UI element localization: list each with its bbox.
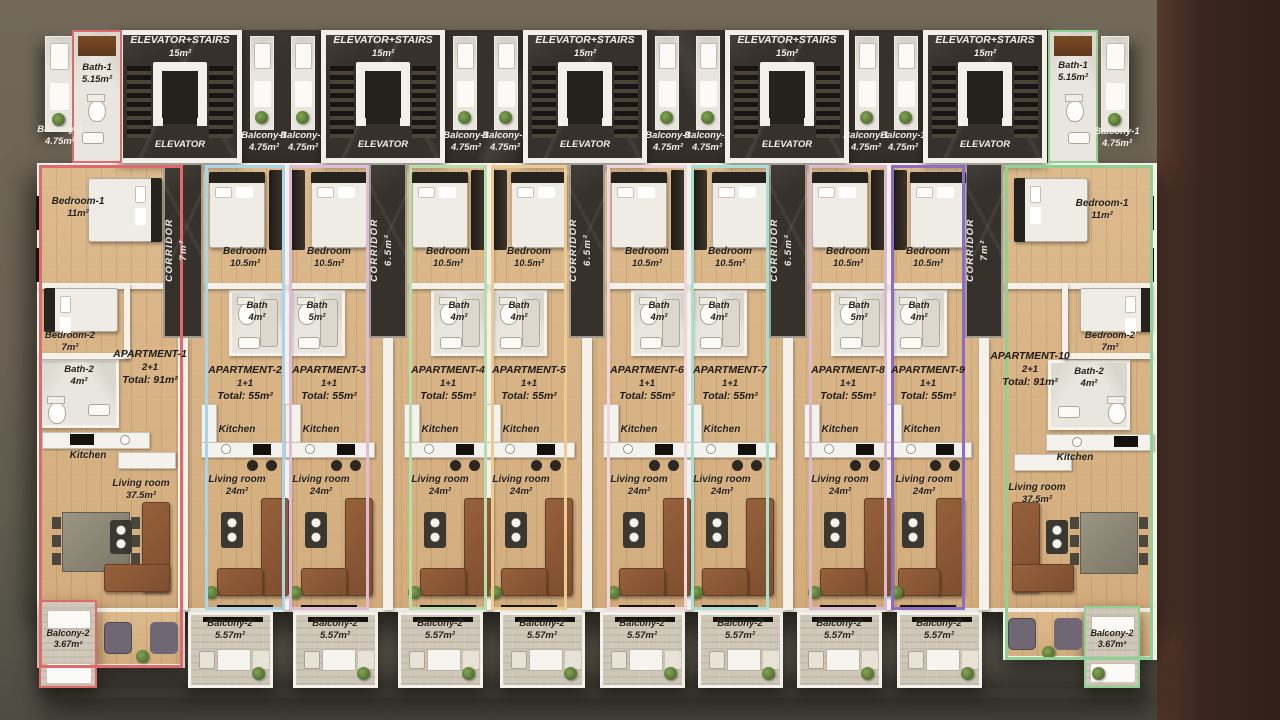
- bedroom-label: Bedroom10.5m²: [810, 246, 886, 270]
- sofa: [464, 498, 492, 596]
- kitchen-counter: [686, 442, 776, 458]
- elevator-label: ELEVATOR: [535, 139, 635, 151]
- stove-icon: [738, 444, 756, 455]
- stove-icon: [70, 434, 94, 445]
- kitchen-counter: [42, 432, 150, 449]
- stool-icon: [930, 460, 941, 471]
- balcony1-label: Balcony-14.75m²: [272, 130, 334, 155]
- stool-icon: [247, 460, 258, 471]
- wall: [491, 283, 567, 289]
- living-label: Living room24m²: [281, 474, 361, 498]
- stove-icon: [856, 444, 874, 455]
- bath1-label: Bath-15.15m²: [1048, 60, 1098, 83]
- bath-label: Bath4m²: [489, 300, 549, 323]
- dining-table: [1080, 512, 1138, 574]
- elevator-label: ELEVATOR: [935, 139, 1035, 151]
- sink-icon: [700, 337, 722, 349]
- balcony2-label: Balcony-23.67m²: [1084, 628, 1140, 650]
- core-label: ELEVATOR+STAIRS15m²: [731, 34, 843, 60]
- kitchen-counter: [886, 442, 972, 458]
- coffee-table: [824, 512, 846, 548]
- stove-icon: [655, 444, 673, 455]
- elevator-shaft-icon: [356, 62, 410, 124]
- balcony1-label: Balcony-14.75m²: [676, 130, 738, 155]
- balcony1-label: Balcony-14.75m²: [25, 124, 95, 149]
- stairs-icon: [1014, 66, 1038, 138]
- bedroom-label: Bedroom10.5m²: [491, 246, 567, 270]
- toilet-icon: [1066, 100, 1084, 122]
- stove-icon: [253, 444, 271, 455]
- living-label: Living room37.5m²: [992, 482, 1082, 506]
- corridor-label: CORRIDOR6.5m²: [368, 190, 408, 310]
- balcony-door: [702, 605, 758, 610]
- elevator-label: ELEVATOR: [333, 139, 433, 151]
- bed: [611, 172, 667, 248]
- wall: [383, 338, 393, 610]
- balcony1-label: Balcony-14.75m²: [1082, 126, 1152, 151]
- plant-icon: [489, 586, 502, 599]
- side-panel: [1157, 0, 1280, 720]
- sofa: [619, 568, 665, 596]
- plant-icon: [408, 586, 421, 599]
- plant-icon: [890, 586, 903, 599]
- plant-icon: [808, 586, 821, 599]
- sink-icon: [906, 444, 916, 454]
- stairs-icon: [932, 66, 956, 138]
- wall: [124, 283, 130, 358]
- closet: [871, 170, 885, 250]
- closet: [291, 170, 305, 250]
- sofa: [746, 498, 774, 596]
- sink-icon: [298, 337, 320, 349]
- sofa: [420, 568, 466, 596]
- kitchen-label: Kitchen: [202, 424, 272, 436]
- bed: [812, 172, 868, 248]
- living-label: Living room24m²: [800, 474, 880, 498]
- sink-icon: [824, 444, 834, 454]
- sofa: [663, 498, 691, 596]
- wall: [409, 283, 487, 289]
- bed: [44, 288, 118, 332]
- sofa: [501, 568, 547, 596]
- sofa: [217, 568, 263, 596]
- sink-icon: [424, 444, 434, 454]
- balcony1-label: Balcony-14.75m²: [872, 130, 934, 155]
- armchair: [1008, 618, 1036, 650]
- balcony2-label: Balcony-25.57m²: [504, 618, 580, 641]
- kitchen-label: Kitchen: [486, 424, 556, 436]
- kitchen-label: Kitchen: [887, 424, 957, 436]
- sofa: [864, 498, 892, 596]
- coffee-table: [706, 512, 728, 548]
- sofa: [898, 568, 940, 596]
- stove-icon: [1114, 436, 1138, 447]
- bath1-label: Bath-15.15m²: [72, 62, 122, 85]
- wall: [607, 283, 687, 289]
- closet: [671, 170, 685, 250]
- kitchen-counter: [201, 442, 291, 458]
- wall: [1062, 283, 1068, 358]
- bath-label: Bath4m²: [429, 300, 489, 323]
- core-label: ELEVATOR+STAIRS15m²: [529, 34, 641, 60]
- window: [1150, 248, 1154, 282]
- bedroom-label: Bedroom10.5m²: [291, 246, 367, 270]
- kitchen-label: Kitchen: [687, 424, 757, 436]
- balcony1-strip: [250, 36, 274, 130]
- stairs-icon: [127, 66, 151, 138]
- coffee-table: [505, 512, 527, 548]
- closet: [493, 170, 507, 250]
- sofa: [820, 568, 866, 596]
- bedroom-label: Bedroom10.5m²: [207, 246, 283, 270]
- balcony1-strip: [1101, 36, 1129, 132]
- bath-label: Bath4m²: [227, 300, 287, 323]
- sofa: [936, 498, 964, 596]
- stove-icon: [456, 444, 474, 455]
- stool-icon: [649, 460, 660, 471]
- balcony2-label: Balcony-23.67m²: [40, 628, 96, 650]
- wall: [289, 283, 369, 289]
- stairs-icon: [209, 66, 233, 138]
- bath-label: Bath4m²: [689, 300, 749, 323]
- core-label: ELEVATOR+STAIRS15m²: [327, 34, 439, 60]
- building-shadow: [60, 688, 1140, 698]
- apartment-10-label: APARTMENT-102+1Total: 91m²: [978, 350, 1082, 390]
- plant-icon: [690, 586, 703, 599]
- wall: [691, 283, 769, 289]
- wall: [783, 338, 793, 610]
- kitchen-label: Kitchen: [805, 424, 875, 436]
- sink-icon: [440, 337, 462, 349]
- sink-icon: [88, 404, 110, 416]
- balcony-door: [900, 605, 956, 610]
- apartment-9-label: APARTMENT-91+1Total: 55m²: [876, 364, 980, 404]
- kitchen-label: Kitchen: [53, 450, 123, 462]
- elevator-label: ELEVATOR: [737, 139, 837, 151]
- closet: [693, 170, 707, 250]
- coffee-table: [902, 512, 924, 548]
- sofa: [301, 568, 347, 596]
- window: [1150, 196, 1154, 230]
- kitchen-label: Kitchen: [604, 424, 674, 436]
- elevator-label: ELEVATOR: [130, 139, 230, 151]
- core-label: ELEVATOR+STAIRS15m²: [929, 34, 1041, 60]
- shelf: [78, 36, 116, 56]
- bath-label: Bath4m²: [889, 300, 949, 323]
- plant-icon: [607, 586, 620, 599]
- corridor-label: CORRIDOR6.5m²: [768, 190, 808, 310]
- stool-icon: [331, 460, 342, 471]
- sink-icon: [221, 444, 231, 454]
- living-label: Living room24m²: [400, 474, 480, 498]
- kitchen-label: Kitchen: [286, 424, 356, 436]
- sink-icon: [900, 337, 922, 349]
- stool-icon: [732, 460, 743, 471]
- sofa: [261, 498, 289, 596]
- stairs-icon: [816, 66, 840, 138]
- bedroom-label: Bedroom10.5m²: [890, 246, 966, 270]
- apartment-7-label: APARTMENT-71+1Total: 55m²: [678, 364, 782, 404]
- sofa: [545, 498, 573, 596]
- kitchen-counter: [285, 442, 375, 458]
- elevator-shaft-icon: [153, 62, 207, 124]
- bed: [1080, 288, 1152, 332]
- sink-icon: [120, 435, 130, 445]
- balcony2-label: Balcony-25.57m²: [702, 618, 778, 641]
- living-label: Living room37.5m²: [96, 478, 186, 502]
- sofa: [702, 568, 748, 596]
- elevator-shaft-icon: [760, 62, 814, 124]
- balcony-door: [820, 605, 876, 610]
- shelf: [1054, 36, 1092, 56]
- kitchen-counter: [603, 442, 693, 458]
- sofa: [1012, 564, 1074, 592]
- sofa: [104, 564, 170, 592]
- stove-icon: [936, 444, 954, 455]
- balcony1-label: Balcony-14.75m²: [474, 130, 536, 155]
- bedroom-label: Bedroom10.5m²: [692, 246, 768, 270]
- balcony1-strip: [855, 36, 879, 130]
- stove-icon: [337, 444, 355, 455]
- sink-icon: [500, 337, 522, 349]
- sink-icon: [505, 444, 515, 454]
- toilet-icon: [88, 100, 106, 122]
- kitchen-label: Kitchen: [405, 424, 475, 436]
- closet: [471, 170, 485, 250]
- living-label: Living room24m²: [682, 474, 762, 498]
- balcony-door: [501, 605, 557, 610]
- coffee-table: [221, 512, 243, 548]
- apartment-1-label: APARTMENT-12+1Total: 91m²: [98, 348, 202, 388]
- living-label: Living room24m²: [197, 474, 277, 498]
- balcony2-label: Balcony-25.57m²: [297, 618, 373, 641]
- balcony-door: [619, 605, 675, 610]
- stairs-icon: [330, 66, 354, 138]
- bed: [412, 172, 468, 248]
- balcony1-strip: [894, 36, 918, 130]
- kitchen-counter: [404, 442, 494, 458]
- plant-icon: [205, 586, 218, 599]
- kitchen-label: Kitchen: [1040, 452, 1110, 464]
- kitchen-island: [118, 452, 176, 469]
- toilet-icon: [48, 402, 66, 424]
- stool-icon: [850, 460, 861, 471]
- balcony2-label: Balcony-25.57m²: [402, 618, 478, 641]
- bed: [712, 172, 768, 248]
- sink-icon: [840, 337, 862, 349]
- bedroom-label: Bedroom10.5m²: [609, 246, 685, 270]
- kitchen-counter: [485, 442, 575, 458]
- balcony2-label: Balcony-25.57m²: [604, 618, 680, 641]
- stool-icon: [531, 460, 542, 471]
- coffee-table: [623, 512, 645, 548]
- living-label: Living room24m²: [884, 474, 964, 498]
- living-label: Living room24m²: [481, 474, 561, 498]
- bed: [209, 172, 265, 248]
- sink-icon: [623, 444, 633, 454]
- bath-label: Bath5m²: [287, 300, 347, 323]
- balcony1-strip: [291, 36, 315, 130]
- apartment-5-label: APARTMENT-51+1Total: 55m²: [477, 364, 581, 404]
- bed: [511, 172, 567, 248]
- elevator-shaft-icon: [958, 62, 1012, 124]
- stairs-icon: [734, 66, 758, 138]
- corridor-label: CORRIDOR7m²: [964, 190, 1004, 310]
- window: [36, 248, 40, 282]
- apartment-3-label: APARTMENT-31+1Total: 55m²: [277, 364, 381, 404]
- balcony1-strip: [655, 36, 679, 130]
- armchair: [104, 622, 132, 654]
- bedroom1-label: Bedroom-111m²: [1056, 198, 1148, 222]
- balcony-door: [217, 605, 273, 610]
- wall: [891, 283, 965, 289]
- bath-label: Bath5m²: [829, 300, 889, 323]
- stool-icon: [450, 460, 461, 471]
- plant-icon: [136, 650, 149, 663]
- balcony1-strip: [696, 36, 720, 130]
- coffee-table: [1046, 520, 1068, 554]
- plant-icon: [289, 586, 302, 599]
- coffee-table: [424, 512, 446, 548]
- coffee-table: [305, 512, 327, 548]
- sofa: [345, 498, 373, 596]
- bedroom1-label: Bedroom-111m²: [32, 196, 124, 220]
- bedroom2-label: Bedroom-27m²: [1070, 330, 1150, 353]
- bed: [311, 172, 367, 248]
- corridor-label: CORRIDOR6.5m²: [567, 190, 607, 310]
- living-label: Living room24m²: [599, 474, 679, 498]
- balcony-door: [301, 605, 357, 610]
- floor-plan-scene: ELEVATOR+STAIRS15m² ELEVATOR ELEVATOR+ST…: [0, 0, 1280, 720]
- balcony2-label: Balcony-25.57m²: [901, 618, 977, 641]
- sink-icon: [238, 337, 260, 349]
- bedroom-label: Bedroom10.5m²: [410, 246, 486, 270]
- wall: [809, 283, 887, 289]
- sink-icon: [640, 337, 662, 349]
- bed: [910, 172, 966, 248]
- stairs-icon: [532, 66, 556, 138]
- corridor-label: CORRIDOR7m²: [163, 190, 203, 310]
- bench: [47, 610, 91, 629]
- closet: [893, 170, 907, 250]
- stove-icon: [537, 444, 555, 455]
- toilet-icon: [1108, 402, 1126, 424]
- sink-icon: [706, 444, 716, 454]
- sink-icon: [305, 444, 315, 454]
- stairs-icon: [412, 66, 436, 138]
- bath-label: Bath4m²: [629, 300, 689, 323]
- kitchen-counter: [804, 442, 894, 458]
- closet: [269, 170, 283, 250]
- stairs-icon: [614, 66, 638, 138]
- wall: [582, 338, 592, 610]
- balcony2-label: Balcony-25.57m²: [192, 618, 268, 641]
- wall: [205, 283, 285, 289]
- sink-icon: [1072, 437, 1082, 447]
- core-label: ELEVATOR+STAIRS15m²: [124, 34, 236, 60]
- balcony1-strip: [494, 36, 518, 130]
- balcony1-strip: [45, 36, 73, 132]
- balcony-door: [420, 605, 476, 610]
- balcony2-label: Balcony-25.57m²: [801, 618, 877, 641]
- coffee-table: [110, 520, 132, 554]
- elevator-shaft-icon: [558, 62, 612, 124]
- balcony1-strip: [453, 36, 477, 130]
- plant-icon: [1042, 646, 1055, 659]
- sink-icon: [1058, 406, 1080, 418]
